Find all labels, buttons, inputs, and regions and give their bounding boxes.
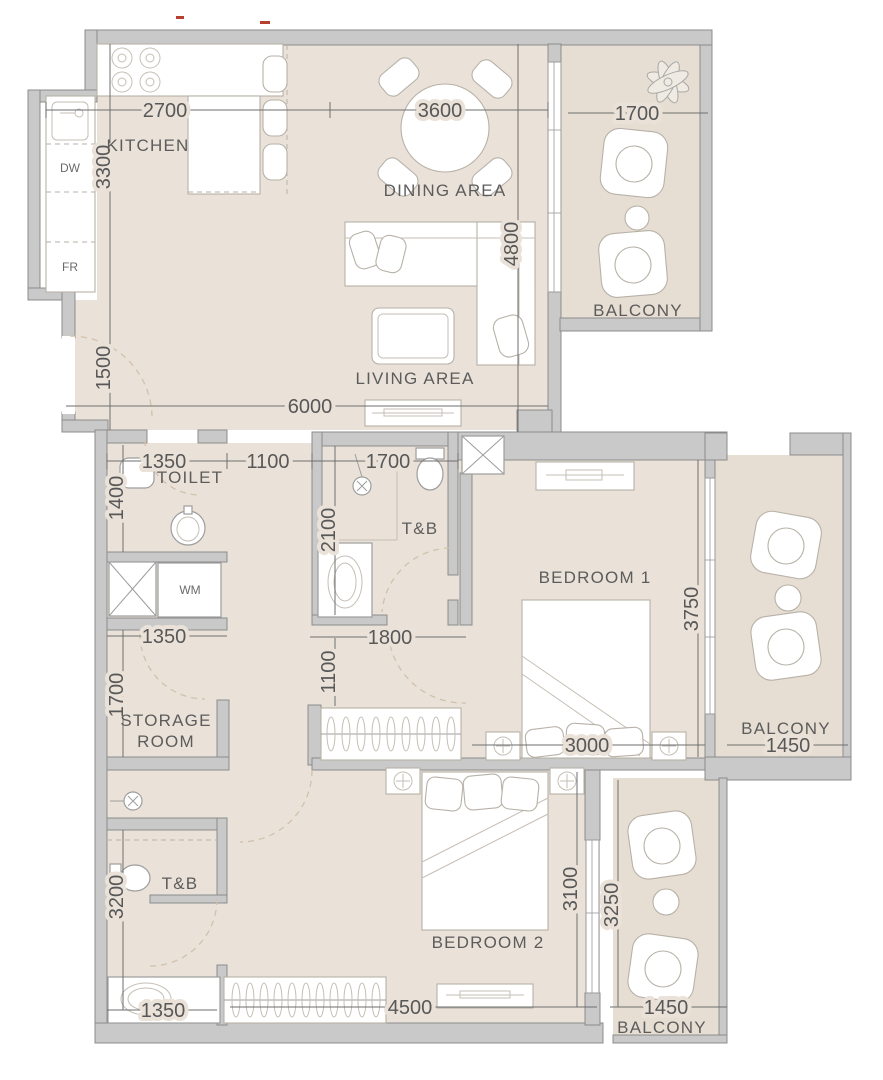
label-storage-2: ROOM <box>137 732 195 751</box>
dim-bedroom1-width: 3000 <box>565 735 610 757</box>
label-living: LIVING AREA <box>355 369 474 388</box>
bed-bedroom2 <box>422 772 548 930</box>
dim-tb-height: 2100 <box>318 508 340 553</box>
label-balcony-top: BALCONY <box>593 301 683 320</box>
label-storage-1: STORAGE <box>120 711 211 730</box>
nightstand-left2 <box>386 768 420 794</box>
dim-toilet-height: 1400 <box>106 476 128 521</box>
balcony-table <box>653 889 679 915</box>
nightstand-right2 <box>550 768 584 794</box>
label-tb-bottom: T&B <box>162 874 199 893</box>
label-washing-machine: WM <box>179 583 200 597</box>
balcony-chair <box>626 809 698 881</box>
dim-tb2-height: 3200 <box>106 875 128 920</box>
dim-bedroom2-width: 4500 <box>388 997 433 1019</box>
dim-hall-width: 1100 <box>246 451 289 473</box>
dim-bedroom1-height: 3750 <box>681 587 703 632</box>
dim-dining-width: 3600 <box>418 100 463 122</box>
dim-bedroom2-height: 3100 <box>560 867 582 912</box>
entry-door-opening <box>62 336 75 414</box>
label-kitchen: KITCHEN <box>106 136 189 155</box>
label-toilet: TOILET <box>157 468 223 487</box>
dim-balcony-right-width: 1450 <box>766 735 811 757</box>
balcony-table <box>775 585 801 611</box>
bedroom1-balcony-window <box>705 478 715 714</box>
wardrobe-bottom <box>224 977 386 1023</box>
balcony-chair <box>626 932 700 1005</box>
toilet-icon <box>416 448 444 490</box>
coffee-table <box>372 308 454 364</box>
dim-entry-height: 1500 <box>93 346 115 391</box>
shaft-by-wm <box>109 562 156 616</box>
label-dining: DINING AREA <box>384 181 507 200</box>
dim-wardrobe-height: 1100 <box>318 650 340 693</box>
label-bedroom1: BEDROOM 1 <box>539 568 652 587</box>
dim-balcony-top-width: 1700 <box>615 103 660 125</box>
label-fridge: FR <box>62 260 78 274</box>
dining-table <box>401 84 489 172</box>
dim-vanity-width: 1350 <box>141 1000 186 1022</box>
wardrobe-mid <box>321 708 461 760</box>
bedroom2-balcony-window <box>586 840 599 993</box>
dresser-bedroom1 <box>536 462 634 490</box>
dim-kitchen-width: 2700 <box>143 100 188 122</box>
label-bedroom2: BEDROOM 2 <box>432 933 545 952</box>
balcony-table <box>625 206 649 230</box>
tv-console <box>365 400 461 426</box>
dim-living-width: 6000 <box>288 396 333 418</box>
balcony-chair <box>749 610 823 683</box>
dining-balcony-window <box>548 62 561 292</box>
balcony-chair <box>597 229 668 299</box>
nightstand-left <box>486 732 520 760</box>
dim-storage-width: 1350 <box>142 626 187 648</box>
dim-balcony-bottom-width: 1450 <box>644 997 689 1019</box>
vanity-sink <box>318 543 372 617</box>
shaft-by-tb <box>462 436 504 474</box>
label-tb-mid: T&B <box>402 519 439 538</box>
dim-wardrobe-width: 1800 <box>368 627 413 649</box>
balcony-chair <box>748 509 824 582</box>
label-dishwasher: DW <box>60 161 81 175</box>
balcony-chair <box>599 127 670 199</box>
label-balcony-bottom: BALCONY <box>617 1018 707 1037</box>
dim-balcony-bottom-height: 3250 <box>601 883 623 928</box>
dresser-bedroom2 <box>437 984 533 1008</box>
dim-tb-width: 1700 <box>366 451 411 473</box>
label-balcony-right: BALCONY <box>741 719 831 738</box>
nightstand-right <box>652 732 686 760</box>
dim-living-height: 4800 <box>501 222 523 267</box>
bar-stools <box>263 56 287 180</box>
floor-plan: 2700 3600 1700 3300 4800 1500 6000 1350 … <box>0 0 883 1080</box>
red-marks <box>176 16 270 24</box>
